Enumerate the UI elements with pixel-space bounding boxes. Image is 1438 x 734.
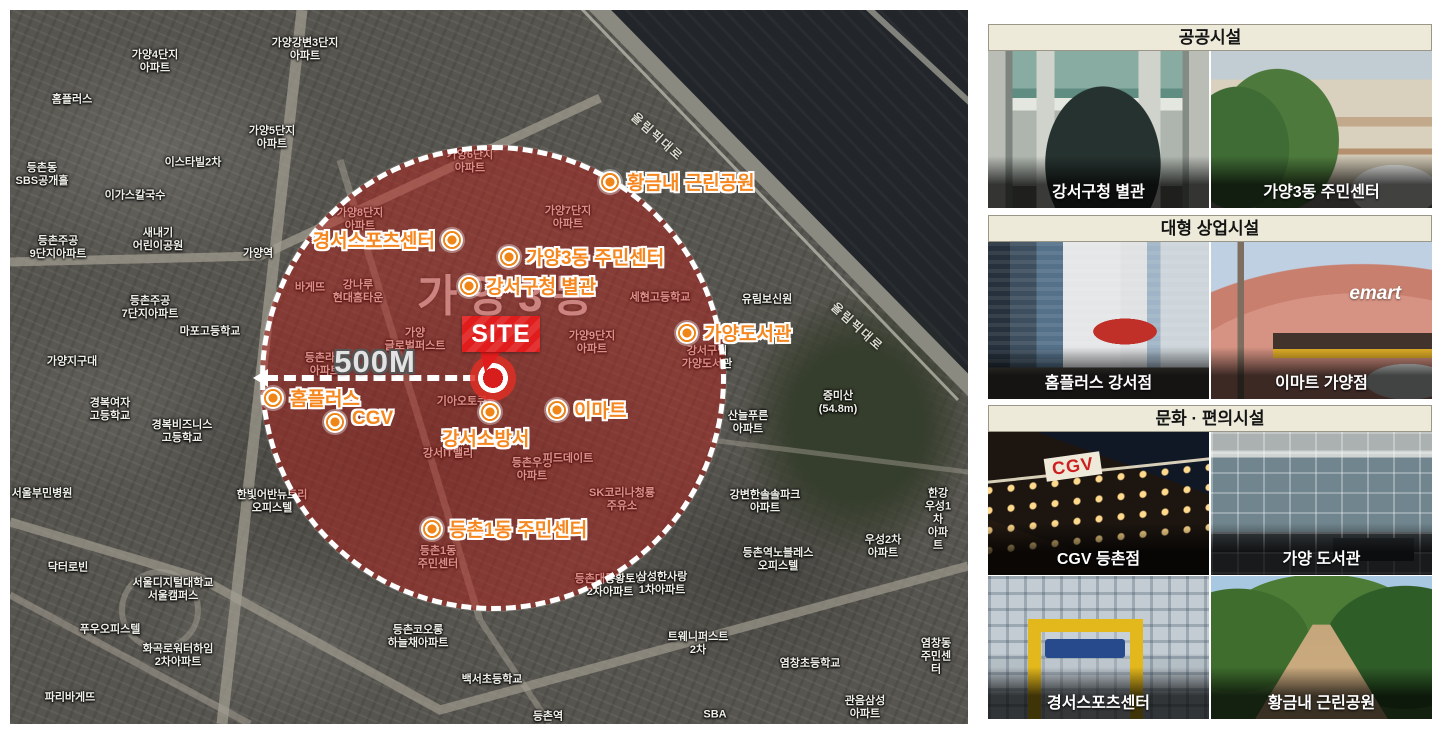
facility-marker xyxy=(479,401,501,423)
facility-label: 강서소방서 xyxy=(442,424,529,451)
facility-photo: emart이마트 가양점 xyxy=(1211,242,1432,399)
photo-grid: CGVCGV 등촌점가양 도서관경서스포츠센터황금내 근린공원 xyxy=(988,432,1432,719)
facility-marker xyxy=(676,322,698,344)
section-header: 공공시설 xyxy=(988,24,1432,51)
section-header: 문화 · 편의시설 xyxy=(988,405,1432,432)
site-flag: SITE xyxy=(462,316,540,352)
facility-photo: 강서구청 별관 xyxy=(988,51,1209,208)
photo-caption: 홈플러스 강서점 xyxy=(988,347,1209,399)
facility-label: 강서구청 별관 xyxy=(486,272,596,299)
facility-label: CGV xyxy=(352,408,393,430)
facility-marker xyxy=(599,171,621,193)
facility-marker xyxy=(421,518,443,540)
photo-caption: CGV 등촌점 xyxy=(988,523,1209,575)
facility-photo: 가양3동 주민센터 xyxy=(1211,51,1432,208)
facility-label: 이마트 xyxy=(574,396,626,423)
facility-marker xyxy=(324,411,346,433)
facility-photo: CGVCGV 등촌점 xyxy=(988,432,1209,575)
facility-photo: 가양 도서관 xyxy=(1211,432,1432,575)
facility-label: 등촌1동 주민센터 xyxy=(449,515,587,542)
facility-label: 홈플러스 xyxy=(290,384,360,411)
radius-arrow-icon xyxy=(253,369,268,387)
facility-label: 가양도서관 xyxy=(704,319,791,346)
facility-label: 경서스포츠센터 xyxy=(313,226,435,253)
facility-marker xyxy=(498,246,520,268)
facility-label: 황금내 근린공원 xyxy=(627,168,755,195)
facility-marker xyxy=(441,229,463,251)
facility-marker xyxy=(546,399,568,421)
facility-photo: 홈플러스 강서점 xyxy=(988,242,1209,399)
facility-photo: 경서스포츠센터 xyxy=(988,576,1209,719)
facility-marker xyxy=(262,387,284,409)
photo-caption: 강서구청 별관 xyxy=(988,156,1209,208)
satellite-map: 가양4단지 아파트가양강변3단지 아파트홈플러스가양5단지 아파트이스타빌2차등… xyxy=(10,10,968,724)
facility-photo: 황금내 근린공원 xyxy=(1211,576,1432,719)
facility-marker xyxy=(458,275,480,297)
radius-distance-label: 500M xyxy=(310,344,440,380)
photo-grid: 강서구청 별관가양3동 주민센터 xyxy=(988,51,1432,208)
photo-sign-text: emart xyxy=(1349,283,1401,305)
section-header: 대형 상업시설 xyxy=(988,215,1432,242)
map-annotation-layer: 500M SITE 황금내 근린공원경서스포츠센터가양3동 주민센터강서구청 별… xyxy=(10,10,968,724)
photo-caption: 가양 도서관 xyxy=(1211,523,1432,575)
photo-caption: 황금내 근린공원 xyxy=(1211,667,1432,719)
facility-label: 가양3동 주민센터 xyxy=(526,243,664,270)
photo-caption: 경서스포츠센터 xyxy=(988,667,1209,719)
site-flag-tail xyxy=(480,351,502,372)
photo-grid: 홈플러스 강서점emart이마트 가양점 xyxy=(988,242,1432,399)
facility-photo-panel: 공공시설강서구청 별관가양3동 주민센터대형 상업시설홈플러스 강서점emart… xyxy=(988,24,1432,719)
photo-caption: 이마트 가양점 xyxy=(1211,347,1432,399)
photo-caption: 가양3동 주민센터 xyxy=(1211,156,1432,208)
